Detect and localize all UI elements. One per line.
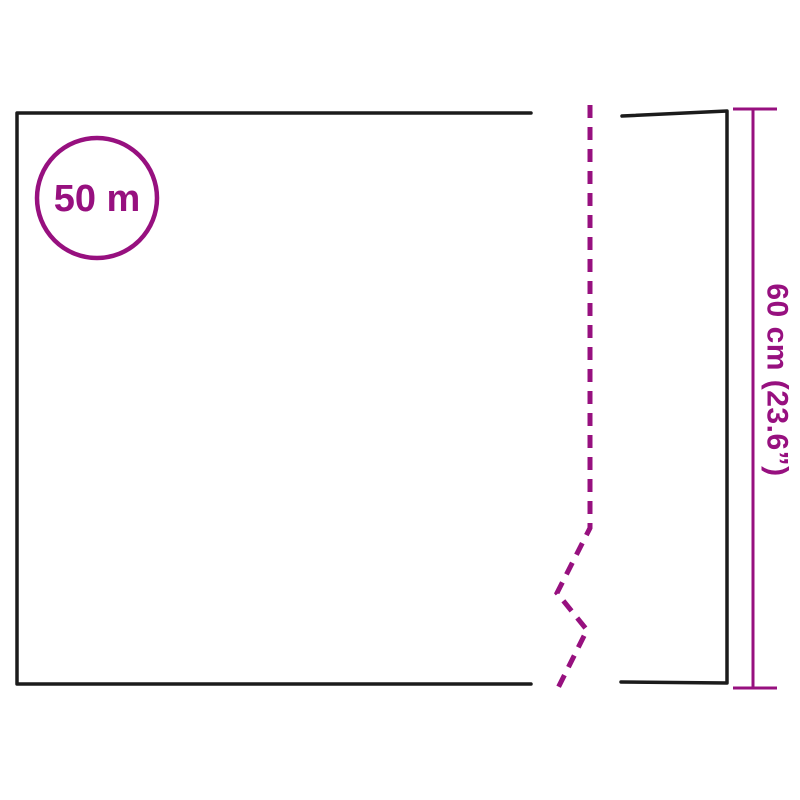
break-line (557, 105, 590, 690)
roll-height-label: 60 cm (23.6”) (761, 283, 794, 476)
roll-length-label: 50 m (54, 178, 141, 220)
roll-dimension-diagram: 50 m 60 cm (23.6”) (0, 0, 800, 800)
diagram-canvas: 50 m 60 cm (23.6”) (0, 0, 800, 800)
roll-outline-right (621, 111, 727, 683)
